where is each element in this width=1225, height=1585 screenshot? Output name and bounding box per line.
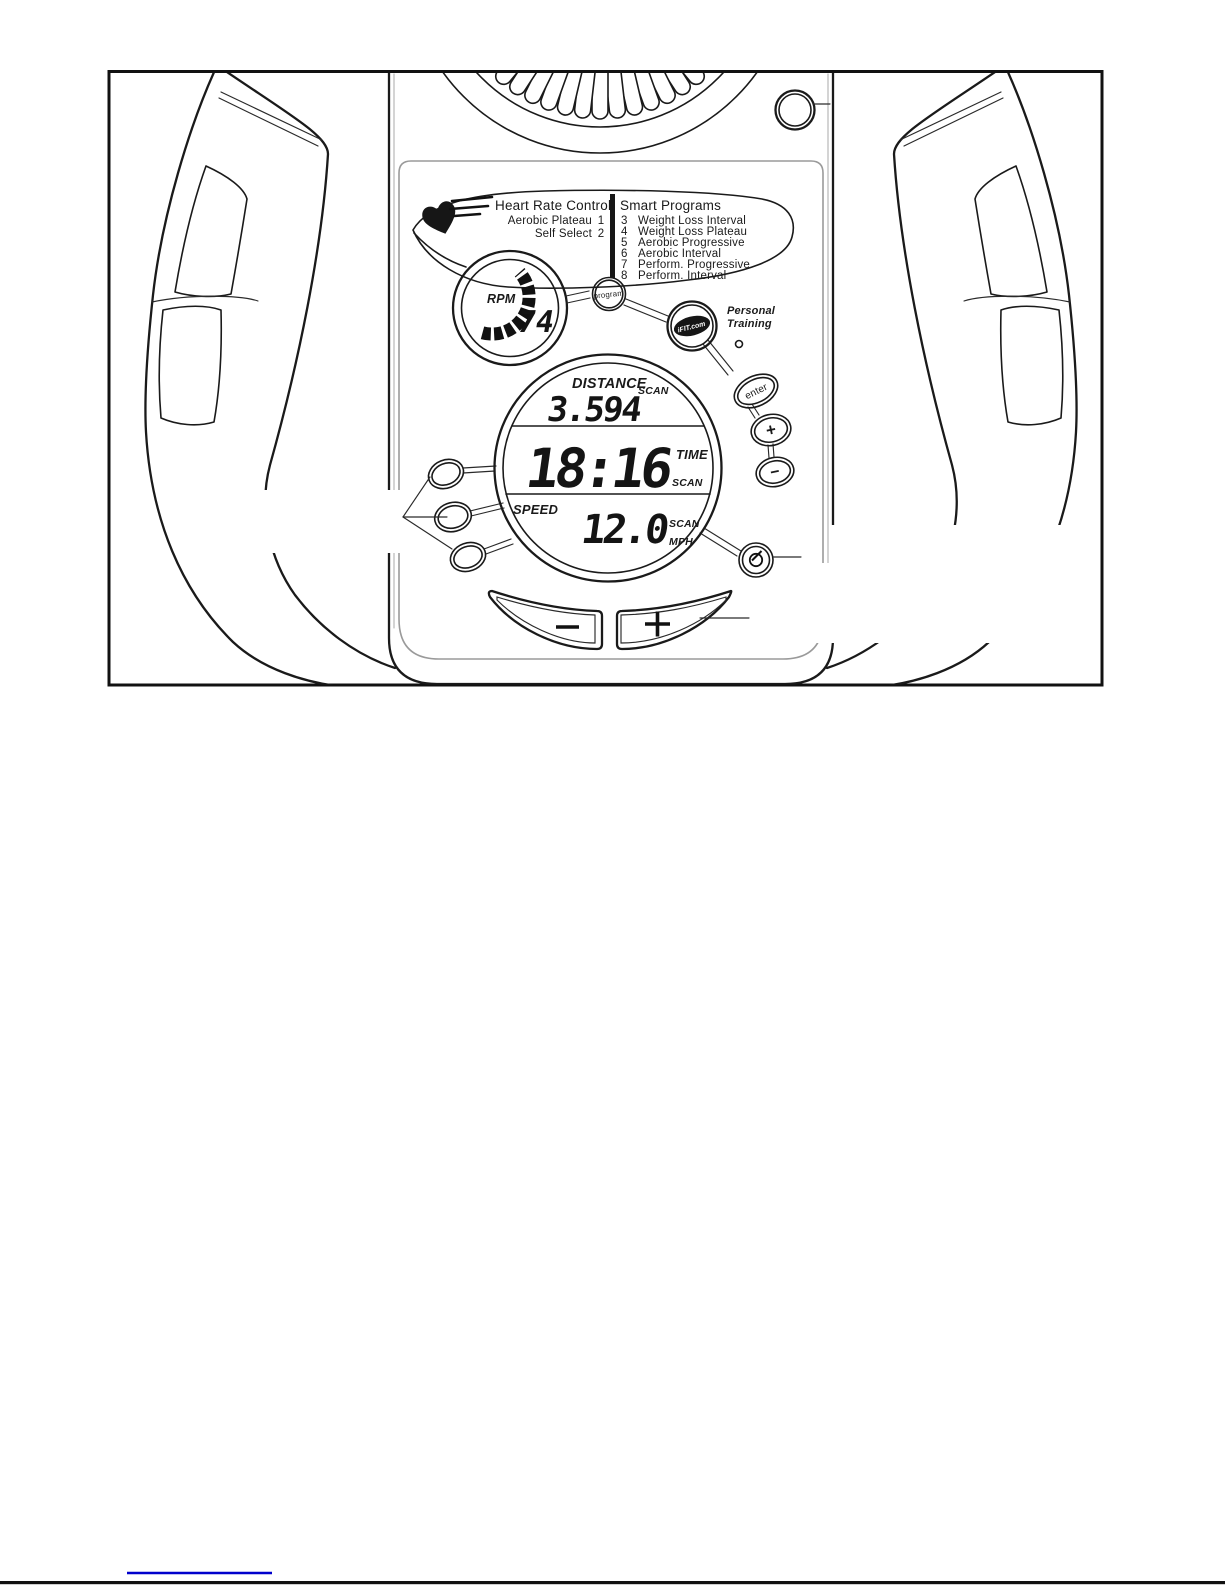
time-value: 18:16 — [522, 437, 675, 500]
page-bottom-rule — [0, 1581, 1225, 1584]
white-mask-right-lower — [777, 563, 1097, 643]
heart-rate-control-title: Heart Rate Control — [495, 198, 611, 213]
distance-value: 3.594 — [545, 390, 644, 430]
speed-value: 12.0 — [579, 507, 671, 553]
speed-unit-label: MPH — [669, 536, 693, 548]
speed-label: SPEED — [513, 502, 558, 517]
sp-number: 8 — [621, 270, 628, 282]
legend-divider — [610, 194, 615, 278]
time-label: TIME — [676, 447, 708, 462]
hrc-option-number: 1 — [598, 215, 605, 227]
distance-scan-label: SCAN — [638, 385, 669, 397]
white-mask-left — [263, 490, 405, 553]
personal-training-line1: Personal — [727, 305, 776, 317]
speed-scan-label: SCAN — [669, 518, 700, 530]
manual-page: Heart Rate Control Aerobic Plateau 1 Sel… — [0, 0, 1225, 1585]
rpm-value: 74 — [515, 305, 557, 340]
smart-programs-title: Smart Programs — [620, 198, 721, 213]
console-diagram: Heart Rate Control Aerobic Plateau 1 Sel… — [0, 0, 1225, 1585]
white-mask-right-upper — [830, 525, 1097, 565]
hrc-option-label: Aerobic Plateau — [508, 215, 592, 227]
hrc-option-number: 2 — [598, 228, 605, 240]
time-scan-label: SCAN — [672, 477, 703, 489]
rpm-label: RPM — [487, 292, 516, 306]
hrc-option-label: Self Select — [535, 228, 593, 240]
personal-training-line2: Training — [727, 318, 772, 330]
sp-label: Perform. Interval — [638, 270, 726, 282]
